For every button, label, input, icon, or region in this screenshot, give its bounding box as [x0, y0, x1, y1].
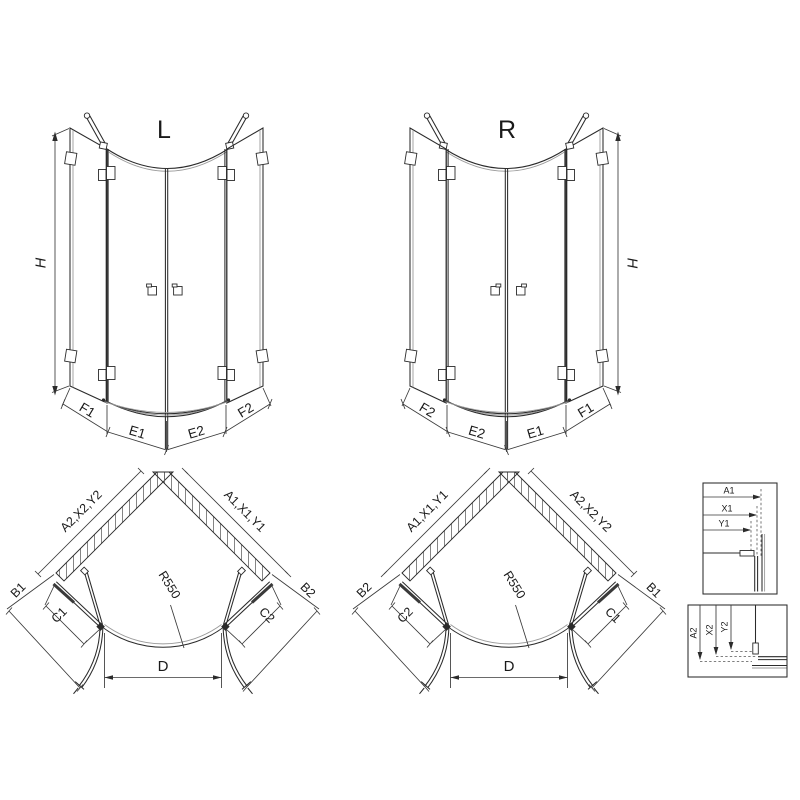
glass-profile: [758, 657, 787, 660]
opening-label: D: [504, 658, 515, 675]
segment-label-f2: F2: [417, 400, 438, 421]
detail-dim-label: X1: [721, 504, 732, 514]
segment-label-f1: F1: [77, 400, 98, 421]
detail-dashed-lines: [700, 652, 757, 662]
view-title: R: [498, 116, 516, 144]
view-title: L: [157, 116, 171, 144]
radius-leader-line: [516, 605, 530, 648]
radius-label: R550: [501, 568, 529, 601]
wall-dimension-label: A1,X1,Y1: [404, 488, 451, 535]
profile-bracket: [740, 551, 754, 557]
fixed-dimension-label: C2: [395, 605, 416, 626]
fixed-dimension-label: C2: [256, 605, 277, 626]
technical-drawing-page: L H F1 E1 E2 F2 R H F2 E2 E1 F1 A2,X2,Y2…: [0, 0, 800, 800]
radius-label: R550: [156, 568, 184, 601]
detail-dashed-lines: [751, 489, 761, 556]
detail-arrows: [743, 495, 761, 533]
detail-arrows: [698, 642, 734, 660]
height-label: H: [34, 257, 50, 268]
plan-right-view: A1,X1,Y1 A2,X2,Y2 B2 B1 C2 C1 R550 D: [352, 468, 666, 694]
detail-box-a2x2y2: A2 X2 Y2: [688, 605, 787, 677]
elevation-right-view: R H F2 E2 E1 F1: [401, 113, 640, 455]
side-dimension-label: B1: [8, 580, 29, 601]
height-label: H: [624, 258, 640, 269]
fixed-dimension-label: C1: [602, 605, 623, 626]
plan-left-view: A2,X2,Y2 A1,X1,Y1 B1 B2 C1 C2 R550 D: [6, 468, 320, 694]
glass-profile: [755, 556, 758, 592]
wall-dimension-label: A2,X2,Y2: [567, 488, 614, 535]
detail-frame: [703, 483, 777, 594]
wall-dimension-label: A2,X2,Y2: [58, 488, 105, 535]
detail-dim-label: X2: [705, 624, 715, 635]
detail-dim-label: Y1: [718, 519, 729, 529]
radius-leader-line: [171, 605, 185, 648]
detail-box-a1x1y1: A1 X1 Y1: [703, 483, 777, 594]
detail-dim-label: A2: [689, 627, 699, 638]
opening-label: D: [158, 658, 169, 675]
wall-dimension-label: A1,X1,Y1: [221, 488, 268, 535]
side-dimension-label: B2: [354, 580, 375, 601]
segment-label-f1: F1: [575, 400, 596, 421]
fixed-dimension-label: C1: [49, 605, 70, 626]
detail-frame: [688, 605, 787, 677]
profile-bracket: [753, 643, 759, 654]
segment-label-f2: F2: [235, 400, 256, 421]
detail-dim-label: Y2: [720, 621, 730, 632]
elevation-left-view: L H F1 E1 E2 F2: [34, 113, 273, 455]
side-dimension-label: B2: [297, 580, 318, 601]
detail-dim-label: A1: [723, 486, 734, 496]
side-dimension-label: B1: [643, 580, 664, 601]
shower-enclosure-diagram: L H F1 E1 E2 F2 R H F2 E2 E1 F1 A2,X2,Y2…: [0, 0, 800, 800]
